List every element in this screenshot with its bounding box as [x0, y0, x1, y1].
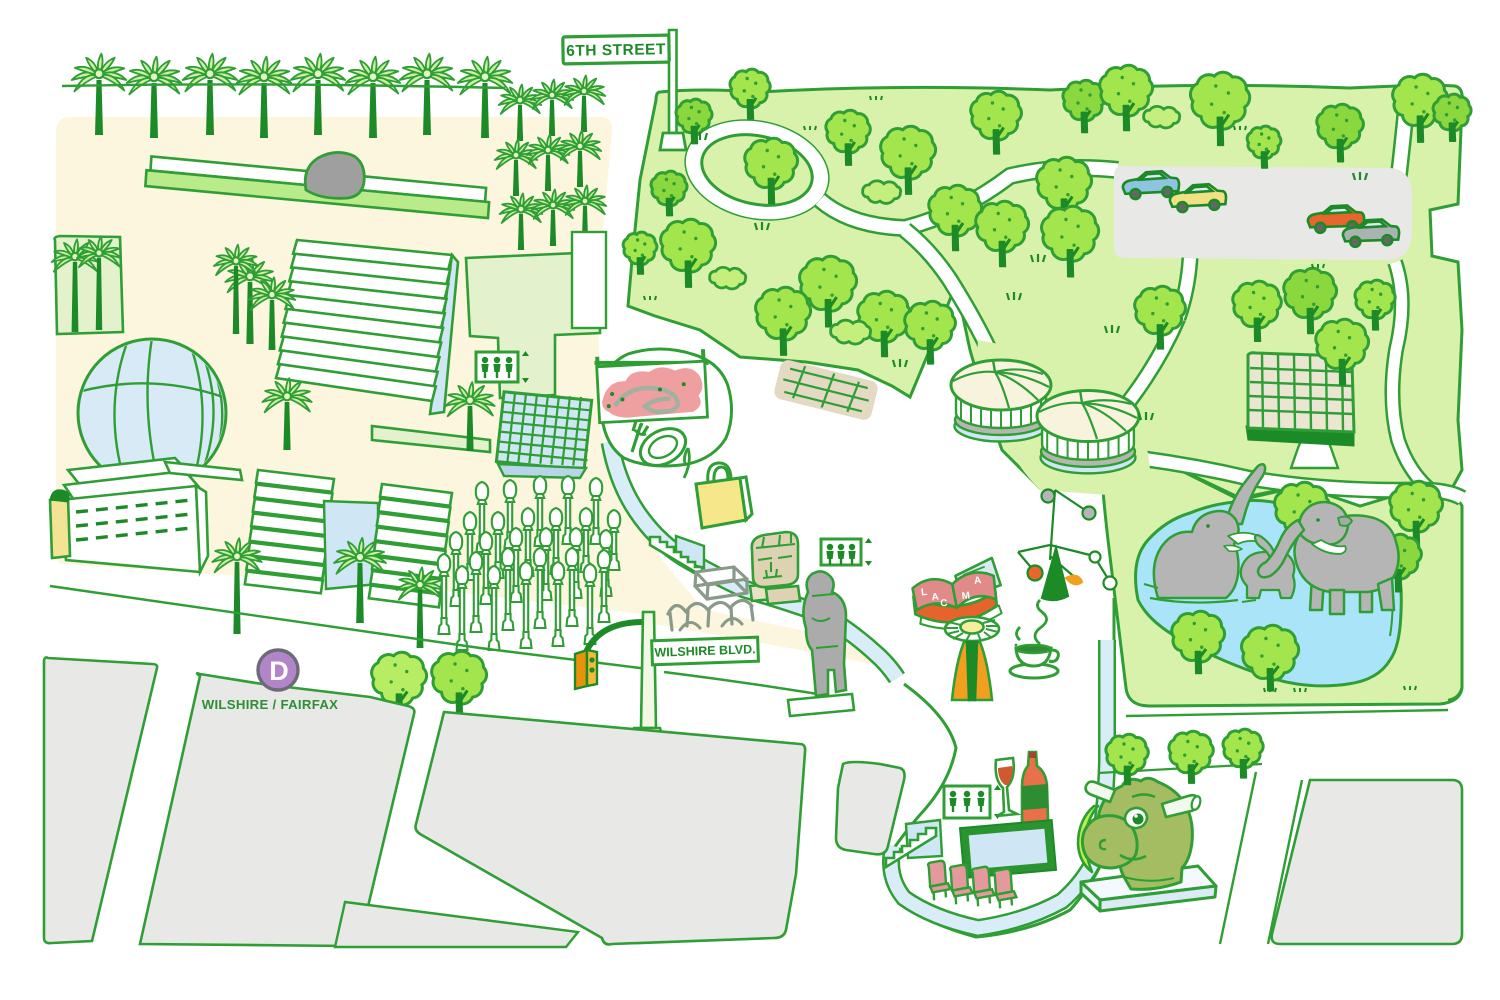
svg-text:WILSHIRE / FAIRFAX: WILSHIRE / FAIRFAX [202, 697, 339, 712]
svg-text:D: D [269, 656, 289, 686]
svg-text:L: L [921, 587, 928, 599]
svg-text:C: C [940, 598, 948, 610]
svg-text:A: A [974, 575, 982, 587]
svg-text:6TH STREET: 6TH STREET [566, 41, 666, 60]
svg-text:M: M [961, 590, 970, 602]
svg-text:A: A [931, 592, 939, 604]
